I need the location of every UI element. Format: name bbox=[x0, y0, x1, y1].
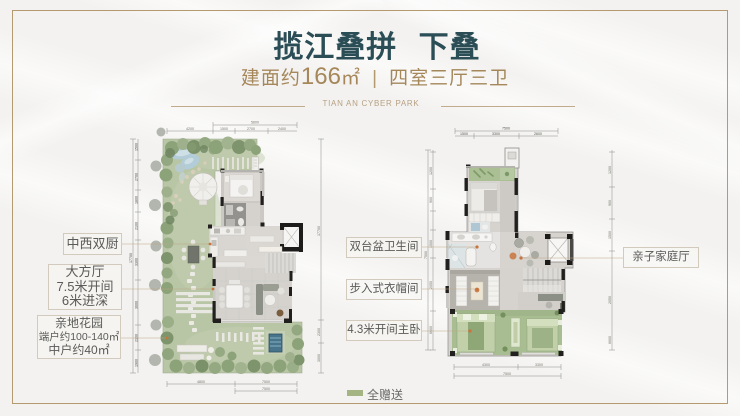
svg-text:3300: 3300 bbox=[492, 132, 500, 136]
svg-text:6600: 6600 bbox=[429, 326, 433, 334]
svg-text:2300: 2300 bbox=[317, 328, 321, 336]
svg-text:2050: 2050 bbox=[608, 296, 612, 304]
svg-text:1200: 1200 bbox=[608, 166, 612, 174]
svg-text:6600: 6600 bbox=[608, 336, 612, 344]
svg-text:7500: 7500 bbox=[262, 387, 270, 391]
svg-text:3000: 3000 bbox=[317, 354, 321, 362]
svg-text:2700: 2700 bbox=[247, 127, 255, 131]
svg-text:7500: 7500 bbox=[262, 380, 270, 384]
svg-text:7500: 7500 bbox=[424, 251, 428, 259]
svg-text:7500: 7500 bbox=[502, 127, 510, 131]
svg-text:3600: 3600 bbox=[135, 301, 139, 309]
svg-text:1200: 1200 bbox=[429, 167, 433, 175]
svg-text:4200: 4200 bbox=[186, 127, 194, 131]
svg-text:4300: 4300 bbox=[482, 363, 490, 367]
svg-text:900: 900 bbox=[429, 197, 433, 203]
svg-text:2600: 2600 bbox=[534, 132, 542, 136]
svg-text:4800: 4800 bbox=[197, 380, 205, 384]
svg-text:3300: 3300 bbox=[535, 363, 543, 367]
svg-text:17700: 17700 bbox=[129, 253, 133, 263]
svg-text:1500: 1500 bbox=[460, 132, 468, 136]
svg-text:17700: 17700 bbox=[317, 226, 321, 236]
svg-text:1500: 1500 bbox=[220, 127, 228, 131]
svg-text:2400: 2400 bbox=[278, 127, 286, 131]
svg-text:3300: 3300 bbox=[135, 258, 139, 266]
svg-text:900: 900 bbox=[608, 200, 612, 206]
svg-text:2100: 2100 bbox=[135, 222, 139, 230]
svg-text:1500: 1500 bbox=[135, 143, 139, 151]
svg-text:7500: 7500 bbox=[503, 372, 511, 376]
svg-text:1800: 1800 bbox=[135, 196, 139, 204]
svg-text:2700: 2700 bbox=[135, 173, 139, 181]
svg-text:5600: 5600 bbox=[251, 121, 259, 125]
svg-text:1900: 1900 bbox=[135, 359, 139, 367]
svg-text:1500: 1500 bbox=[608, 231, 612, 239]
svg-text:2050: 2050 bbox=[429, 281, 433, 289]
